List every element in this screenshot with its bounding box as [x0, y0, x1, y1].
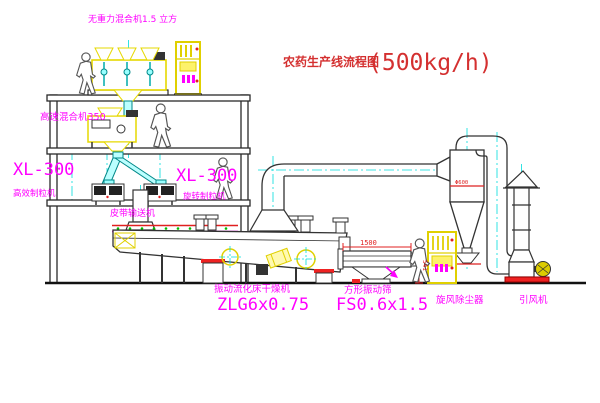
cad-drawing-canvas: 农药生产线流程图 (500kg/h) 无重力混合机1.5 立方 高速混合机350…: [0, 0, 600, 403]
belt-conveyor-label: 皮带输送机: [110, 207, 155, 219]
control-cabinet-1: [174, 42, 202, 94]
dryer-label: 振动流化床干燥机: [214, 283, 291, 295]
dimension-screen-width: 1500: [360, 239, 377, 247]
person-figure: [151, 104, 171, 147]
granulator-left-machine: [92, 180, 124, 205]
gravity-mixer: [88, 48, 168, 116]
title-capacity: (500kg/h): [368, 50, 493, 76]
screen-model: FS0.6x1.5: [336, 295, 428, 315]
induced-draft-fan: [505, 262, 551, 283]
granulator-left-model: XL-300: [13, 160, 74, 180]
granulator-right-machine: [144, 180, 176, 205]
page-title: 农药生产线流程图: [282, 54, 379, 69]
gravity-mixer-label: 无重力混合机1.5 立方: [88, 13, 177, 25]
flow-diagram: 农药生产线流程图 (500kg/h) 无重力混合机1.5 立方 高速混合机350…: [0, 0, 600, 403]
dimension-cyclone: Φ600: [455, 180, 468, 186]
y-distribution-pipe: [102, 152, 162, 184]
fan-label: 引风机: [519, 294, 548, 306]
dimension-screen-height: 541: [421, 260, 428, 271]
granulator-left-label: 高效制粒机: [13, 188, 56, 199]
control-cabinet-2: [428, 232, 456, 283]
exhaust-stack: [503, 171, 540, 262]
person-figure: [77, 53, 96, 94]
granulator-right-model: XL-300: [176, 166, 237, 186]
granulator-right-label: 旋转制粒机: [183, 191, 226, 202]
exhaust-duct: [262, 157, 450, 210]
dryer-model: ZLG6x0.75: [217, 295, 309, 315]
cyclone-label: 旋风除尘器: [436, 294, 484, 306]
high-speed-mixer-label: 高速混合机350: [40, 111, 106, 123]
